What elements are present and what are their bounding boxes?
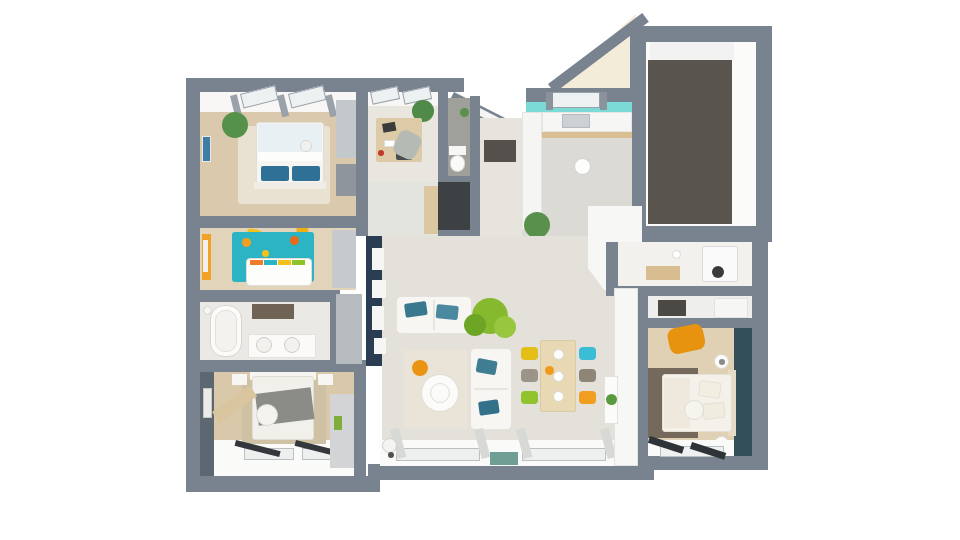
dining-bowl bbox=[545, 366, 554, 375]
bathroom-sink-2 bbox=[284, 337, 300, 353]
coffee-side-table bbox=[412, 360, 428, 376]
bedroom1-wardrobe bbox=[336, 100, 356, 158]
bedroom1-pillow bbox=[261, 166, 289, 181]
bedroom1-wall-art bbox=[202, 136, 211, 162]
office-red-accessory bbox=[378, 150, 384, 156]
kids-rug-toy-2 bbox=[262, 250, 269, 257]
laundry-bench bbox=[646, 266, 680, 280]
dining-chair-orange bbox=[579, 391, 596, 404]
kids-rug-toy-3 bbox=[290, 236, 299, 245]
wall-kids-bath-divider bbox=[198, 290, 340, 302]
dining-chair-teal bbox=[579, 347, 596, 360]
dining-chair-yellow bbox=[521, 347, 538, 360]
living-window-2 bbox=[522, 448, 606, 461]
bedroom1-lamp bbox=[300, 140, 312, 152]
dining-pendant-3 bbox=[553, 391, 564, 402]
wall-bedrooms-divider bbox=[198, 216, 368, 228]
bathroom-sink bbox=[256, 337, 272, 353]
outer-wall-bottom-center bbox=[368, 464, 654, 480]
bedroom3-towel bbox=[334, 416, 342, 430]
living-floor-lamp bbox=[382, 438, 397, 453]
sofa-pillow-2 bbox=[436, 304, 459, 320]
living-navy-shelf-3 bbox=[372, 306, 384, 330]
entry-cabinet bbox=[336, 294, 362, 364]
hall-runner-rug bbox=[424, 186, 438, 234]
kids-crib-trim bbox=[250, 260, 263, 265]
kids-crib-trim-3 bbox=[278, 260, 291, 265]
kitchen-sink bbox=[562, 114, 590, 128]
living-floor-lamp-base bbox=[388, 452, 394, 458]
kitchen-curtain-2 bbox=[600, 92, 607, 110]
wall-bedroom3-right bbox=[354, 366, 366, 476]
garage-door bbox=[650, 42, 734, 60]
bedroom1-bed-duvet bbox=[258, 124, 322, 154]
living-navy-shelf bbox=[372, 248, 384, 270]
master-nightstand-lamp bbox=[719, 359, 725, 365]
sofa-2-pillow-2 bbox=[478, 399, 500, 416]
corridor-cabinet bbox=[714, 298, 748, 318]
dining-pendant bbox=[553, 349, 564, 360]
dining-chair-gray bbox=[521, 369, 538, 382]
console-plant bbox=[606, 394, 617, 405]
sofa-2-seam bbox=[474, 388, 508, 390]
living-navy-shelf-2 bbox=[372, 280, 386, 298]
laundry-ceiling-light bbox=[672, 250, 681, 259]
living-doormat bbox=[490, 452, 518, 465]
bedroom1-pillow-2 bbox=[292, 166, 320, 181]
wall-left-column bbox=[356, 90, 368, 236]
bedroom1-bed-fold bbox=[258, 152, 322, 161]
master-pillow bbox=[698, 380, 722, 399]
wall-master-top bbox=[636, 318, 768, 328]
sofa-seam bbox=[433, 300, 435, 330]
outer-wall-right bbox=[752, 236, 768, 470]
bathroom-mirror bbox=[252, 304, 294, 319]
master-accent-wall bbox=[734, 328, 752, 456]
bedroom1-plant bbox=[222, 112, 248, 138]
master-round-pillow bbox=[684, 400, 704, 420]
kitchen-curtain bbox=[546, 92, 553, 110]
wall-wc-right bbox=[470, 96, 480, 180]
bedroom3-round-pillow bbox=[256, 404, 278, 426]
wc-toilet-bowl bbox=[450, 155, 465, 172]
living-window bbox=[396, 448, 480, 461]
kitchen-window bbox=[552, 92, 600, 108]
wc-toilet-tank bbox=[449, 146, 466, 155]
bedroom3-wardrobe bbox=[330, 394, 354, 468]
master-pillow-2 bbox=[702, 402, 726, 420]
dining-pendant-2 bbox=[553, 371, 564, 382]
dining-chair-green bbox=[521, 391, 538, 404]
coffee-table-ring bbox=[430, 383, 450, 403]
bedroom3-nightstand bbox=[232, 374, 247, 385]
garage-floor bbox=[648, 60, 732, 224]
kids-wardrobe bbox=[332, 230, 356, 288]
living-plant-large-3 bbox=[494, 316, 516, 338]
wc-plant bbox=[460, 108, 469, 117]
kitchen-plant bbox=[524, 212, 550, 238]
kitchen-pendant-light bbox=[574, 158, 591, 175]
dining-chair-brown bbox=[579, 369, 596, 382]
outer-wall-bottom-left bbox=[186, 476, 380, 492]
outer-wall-left bbox=[186, 78, 200, 492]
bathroom-ceiling-light bbox=[203, 306, 212, 315]
floor-plan bbox=[0, 0, 960, 540]
bedroom1-storage-unit bbox=[336, 164, 356, 196]
kitchen-worktop-wood bbox=[542, 132, 632, 138]
kids-crib-trim-4 bbox=[292, 260, 305, 265]
kids-room-window bbox=[203, 240, 208, 272]
kids-rug-toy bbox=[242, 238, 251, 247]
entry-hall-floor bbox=[480, 118, 522, 238]
laundry-washer-door bbox=[712, 266, 724, 278]
living-plant-large-2 bbox=[464, 314, 486, 336]
bedroom3-wall-art bbox=[203, 388, 212, 418]
kids-crib-trim-2 bbox=[264, 260, 277, 265]
bedroom1-headboard bbox=[254, 182, 326, 189]
bedroom3-nightstand-2 bbox=[318, 374, 333, 385]
bathtub-inner bbox=[215, 310, 237, 352]
living-navy-shelf-4 bbox=[374, 338, 386, 354]
wall-office-wc bbox=[438, 90, 448, 180]
entry-doormat bbox=[484, 140, 516, 162]
corridor-doormat bbox=[658, 300, 686, 316]
